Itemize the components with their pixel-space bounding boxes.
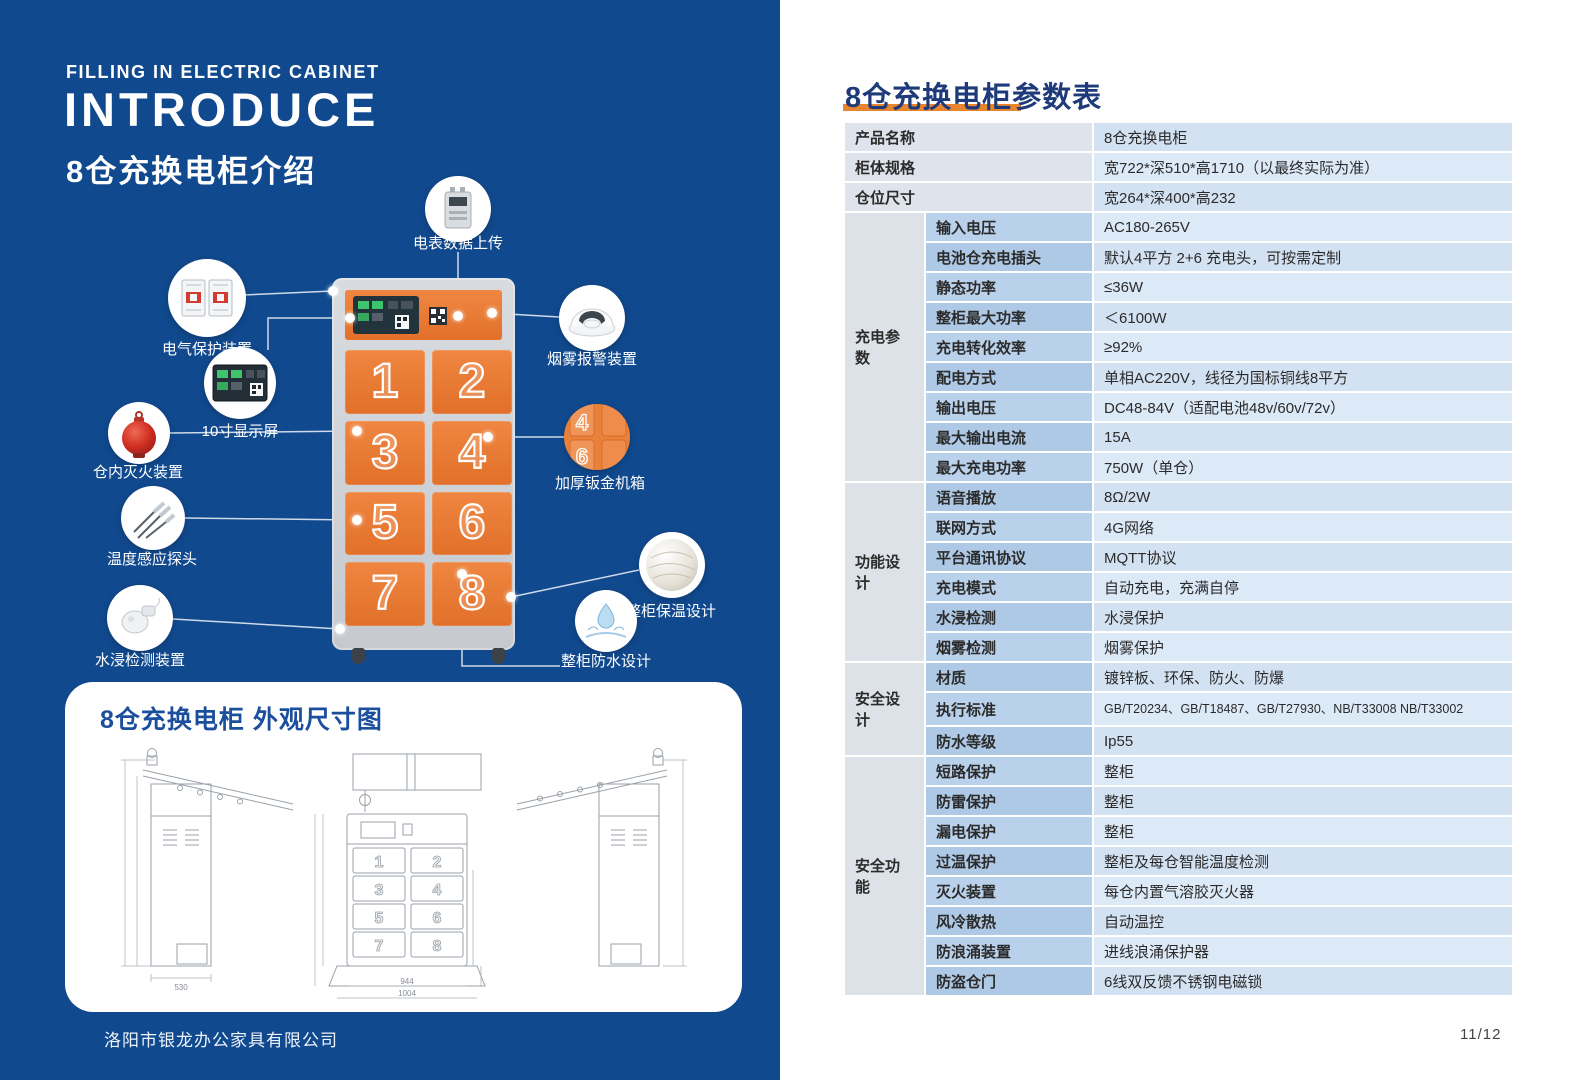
spec-param-value: 15A [1093, 422, 1513, 452]
door-number: 1 [372, 358, 399, 406]
spec-param-value: 整柜 [1093, 756, 1513, 786]
callout-anchor-dot [506, 592, 516, 602]
metal-case-icon: 4 6 [564, 404, 630, 470]
spec-group-label: 安全功能 [845, 756, 925, 996]
dimension-panel-title: 8仓充换电柜 外观尺寸图 [100, 700, 383, 736]
spec-table: 产品名称8仓充换电柜柜体规格宽722*深510*高1710（以最终实际为准）仓位… [845, 123, 1514, 997]
cabinet-caster [352, 648, 365, 664]
spec-param-value: ≥92% [1093, 332, 1513, 362]
spec-param-value: 烟雾保护 [1093, 632, 1513, 662]
spec-param-value: AC180-265V [1093, 212, 1513, 242]
insulation-callout [639, 532, 705, 598]
spec-param-name: 整柜最大功率 [925, 302, 1093, 332]
spec-param-value: 默认4平方 2+6 充电头，可按需定制 [1093, 242, 1513, 272]
cabinet-door-1: 1 [345, 350, 425, 414]
cabinet-door-8: 8 [432, 562, 512, 626]
cabinet-door-2: 2 [432, 350, 512, 414]
spec-param-value: GB/T20234、GB/T18487、GB/T27930、NB/T33008 … [1093, 692, 1513, 726]
company-name: 洛阳市银龙办公家具有限公司 [104, 1026, 338, 1051]
spec-param-name: 材质 [925, 662, 1093, 692]
mini-door-number: 5 [375, 910, 384, 927]
spec-row: 产品名称8仓充换电柜 [845, 123, 1513, 152]
spec-param-name: 水浸检测 [925, 602, 1093, 632]
door-number: 3 [372, 429, 399, 477]
spec-param-name: 电池仓充电插头 [925, 242, 1093, 272]
temperature-probe-icon [130, 496, 176, 540]
smoke-alarm-callout [559, 285, 625, 351]
fire-extinguisher-callout [108, 402, 170, 464]
spec-row: 电池仓充电插头默认4平方 2+6 充电头，可按需定制 [845, 242, 1513, 272]
intro-title: INTRODUCE [64, 82, 379, 137]
water-splash-icon [582, 600, 630, 642]
callout-anchor-dot [352, 426, 362, 436]
spec-row: 仓位尺寸宽264*深400*高232 [845, 182, 1513, 212]
spec-param-name: 灭火装置 [925, 876, 1093, 906]
dim-front-base: 1004 [398, 989, 416, 998]
display-screen-icon [212, 364, 268, 402]
spec-param-value: 整柜 [1093, 786, 1513, 816]
spec-param-name: 漏电保护 [925, 816, 1093, 846]
mini-door-number: 2 [433, 854, 442, 871]
spec-param-value: 整柜及每仓智能温度检测 [1093, 846, 1513, 876]
spec-param-name: 执行标准 [925, 692, 1093, 726]
callout-anchor-dot [457, 569, 467, 579]
spec-param-name: 防雷保护 [925, 786, 1093, 816]
spec-param-value: 自动温控 [1093, 906, 1513, 936]
callout-anchor-dot [487, 308, 497, 318]
spec-param-value: ＜6100W [1093, 302, 1513, 332]
spec-param-name: 防水等级 [925, 726, 1093, 756]
water-detect-label: 水浸检测装置 [95, 649, 185, 670]
waterproof-label: 整柜防水设计 [561, 650, 651, 671]
callout-anchor-dot [328, 286, 338, 296]
door-number: 7 [372, 570, 399, 618]
spec-row: 整柜最大功率＜6100W [845, 302, 1513, 332]
spec-row: 功能设计语音播放8Ω/2W [845, 482, 1513, 512]
door-number: 5 [372, 499, 399, 547]
spec-row: 安全功能短路保护整柜 [845, 756, 1513, 786]
mini-door-number: 4 [433, 882, 442, 899]
cabinet-caster [492, 648, 505, 664]
spec-row-label: 柜体规格 [845, 152, 1093, 182]
spec-row: 安全设计材质镀锌板、环保、防火、防爆 [845, 662, 1513, 692]
door-number: 2 [459, 358, 486, 406]
mini-door-number: 3 [375, 882, 384, 899]
spec-row: 过温保护整柜及每仓智能温度检测 [845, 846, 1513, 876]
spec-row: 执行标准GB/T20234、GB/T18487、GB/T27930、NB/T33… [845, 692, 1513, 726]
insulation-label: 整柜保温设计 [626, 600, 716, 621]
spec-row: 柜体规格宽722*深510*高1710（以最终实际为准） [845, 152, 1513, 182]
metal-case-label: 加厚钣金机箱 [555, 472, 645, 493]
door-number: 4 [459, 429, 486, 477]
metal-case-door-number: 6 [576, 444, 588, 469]
side-view-left-drawing: 530 [121, 749, 293, 993]
spec-row: 最大充电功率750W（单仓） [845, 452, 1513, 482]
meter-callout-label: 电表数据上传 [413, 232, 503, 253]
spec-row: 防水等级Ip55 [845, 726, 1513, 756]
spec-param-name: 过温保护 [925, 846, 1093, 876]
dimension-drawings: 530 1 2 3 [85, 740, 725, 1008]
intro-subtitle: 8仓充换电柜介绍 [66, 146, 316, 191]
metal-case-door-number: 4 [576, 410, 589, 435]
spec-row: 充电参数输入电压AC180-265V [845, 212, 1513, 242]
spec-param-name: 烟雾检测 [925, 632, 1093, 662]
spec-param-name: 静态功率 [925, 272, 1093, 302]
spec-row-label: 产品名称 [845, 123, 1093, 152]
spec-param-value: 水浸保护 [1093, 602, 1513, 632]
spec-row: 配电方式单相AC220V，线径为国标铜线8平方 [845, 362, 1513, 392]
spec-table-title: 8仓充换电柜参数表 [845, 74, 1102, 116]
spec-param-value: DC48-84V（适配电池48v/60v/72v） [1093, 392, 1513, 422]
spec-row: 输出电压DC48-84V（适配电池48v/60v/72v） [845, 392, 1513, 422]
spec-param-value: 进线浪涌保护器 [1093, 936, 1513, 966]
callout-anchor-dot [483, 432, 493, 442]
spec-param-name: 短路保护 [925, 756, 1093, 786]
waterproof-callout [575, 590, 637, 652]
spec-row: 充电转化效率≥92% [845, 332, 1513, 362]
spec-param-value: 每仓内置气溶胶灭火器 [1093, 876, 1513, 906]
dim-side-width: 530 [174, 983, 188, 992]
spec-row-value: 宽722*深510*高1710（以最终实际为准） [1093, 152, 1513, 182]
insulation-ball-icon [643, 536, 701, 594]
spec-param-name: 风冷散热 [925, 906, 1093, 936]
spec-row: 防浪涌装置进线浪涌保护器 [845, 936, 1513, 966]
spec-param-value: ≤36W [1093, 272, 1513, 302]
front-view-doors: 1 2 3 4 5 6 7 8 [353, 848, 463, 957]
display-callout [204, 347, 276, 419]
qr-code-icon [429, 307, 447, 325]
spec-row: 水浸检测水浸保护 [845, 602, 1513, 632]
cabinet-door-4: 4 [432, 421, 512, 485]
water-detect-callout [107, 585, 173, 651]
spec-param-name: 最大输出电流 [925, 422, 1093, 452]
front-view-drawing: 1 2 3 4 5 6 7 8 944 1004 [315, 754, 485, 998]
spec-group-label: 功能设计 [845, 482, 925, 662]
spec-row-value: 8仓充换电柜 [1093, 123, 1513, 152]
spec-param-name: 充电模式 [925, 572, 1093, 602]
spec-param-name: 充电转化效率 [925, 332, 1093, 362]
spec-row: 防雷保护整柜 [845, 786, 1513, 816]
spec-param-name: 语音播放 [925, 482, 1093, 512]
spec-param-name: 输出电压 [925, 392, 1093, 422]
spec-row: 充电模式自动充电，充满自停 [845, 572, 1513, 602]
spec-row: 最大输出电流15A [845, 422, 1513, 452]
cabinet-door-grid: 12345678 [345, 350, 512, 626]
mini-door-number: 8 [433, 938, 442, 955]
callout-anchor-dot [352, 515, 362, 525]
meter-icon [441, 187, 475, 231]
temp-probe-callout [121, 486, 185, 550]
callout-anchor-dot [345, 313, 355, 323]
spec-row: 风冷散热自动温控 [845, 906, 1513, 936]
circuit-breaker-icon [179, 276, 235, 320]
callout-anchor-dot [453, 311, 463, 321]
spec-param-value: MQTT协议 [1093, 542, 1513, 572]
spec-row: 烟雾检测烟雾保护 [845, 632, 1513, 662]
spec-row: 灭火装置每仓内置气溶胶灭火器 [845, 876, 1513, 906]
smoke-detector-icon [567, 299, 617, 337]
spec-row-value: 宽264*深400*高232 [1093, 182, 1513, 212]
temp-probe-label: 温度感应探头 [107, 548, 197, 569]
spec-param-value: 整柜 [1093, 816, 1513, 846]
brochure-page: FILLING IN ELECTRIC CABINET INTRODUCE 8仓… [0, 0, 1580, 1080]
spec-group-label: 安全设计 [845, 662, 925, 756]
spec-param-name: 平台通讯协议 [925, 542, 1093, 572]
fireball-extinguisher-icon [116, 407, 162, 459]
cabinet-door-7: 7 [345, 562, 425, 626]
spec-param-value: Ip55 [1093, 726, 1513, 756]
side-view-right-drawing [517, 749, 687, 967]
water-sensor-icon [117, 598, 163, 638]
spec-row: 平台通讯协议MQTT协议 [845, 542, 1513, 572]
spec-param-value: 8Ω/2W [1093, 482, 1513, 512]
cabinet-door-6: 6 [432, 492, 512, 556]
spec-row-label: 仓位尺寸 [845, 182, 1093, 212]
page-number: 11/12 [1460, 1026, 1501, 1043]
spec-param-name: 防浪涌装置 [925, 936, 1093, 966]
spec-param-value: 6线双反馈不锈钢电磁锁 [1093, 966, 1513, 996]
spec-row: 静态功率≤36W [845, 272, 1513, 302]
spec-row: 防盗仓门6线双反馈不锈钢电磁锁 [845, 966, 1513, 996]
metal-case-callout: 4 6 [564, 404, 630, 470]
spec-group-label: 充电参数 [845, 212, 925, 482]
cabinet-top-panel [345, 290, 502, 340]
spec-param-name: 防盗仓门 [925, 966, 1093, 996]
spec-param-name: 输入电压 [925, 212, 1093, 242]
dim-front-body: 944 [400, 977, 414, 986]
spec-param-value: 自动充电，充满自停 [1093, 572, 1513, 602]
spec-param-value: 4G网络 [1093, 512, 1513, 542]
callout-anchor-dot [335, 624, 345, 634]
spec-param-name: 最大充电功率 [925, 452, 1093, 482]
mini-door-number: 6 [433, 910, 442, 927]
fire-extinguisher-label: 仓内灭火装置 [93, 461, 183, 482]
smoke-alarm-label: 烟雾报警装置 [547, 348, 637, 369]
spec-param-value: 单相AC220V，线径为国标铜线8平方 [1093, 362, 1513, 392]
spec-param-value: 750W（单仓） [1093, 452, 1513, 482]
mini-door-number: 1 [375, 854, 384, 871]
intro-eyebrow: FILLING IN ELECTRIC CABINET [66, 62, 380, 83]
spec-table-container: 产品名称8仓充换电柜柜体规格宽722*深510*高1710（以最终实际为准）仓位… [845, 123, 1513, 997]
spec-param-value: 镀锌板、环保、防火、防爆 [1093, 662, 1513, 692]
cabinet-screen-icon [353, 296, 419, 334]
intro-panel: FILLING IN ELECTRIC CABINET INTRODUCE 8仓… [0, 0, 780, 1080]
door-number: 6 [459, 499, 486, 547]
spec-row: 联网方式4G网络 [845, 512, 1513, 542]
electric-protection-callout [168, 259, 246, 337]
mini-door-number: 7 [375, 938, 384, 955]
spec-row: 漏电保护整柜 [845, 816, 1513, 846]
spec-param-name: 联网方式 [925, 512, 1093, 542]
display-label: 10寸显示屏 [202, 420, 279, 441]
spec-param-name: 配电方式 [925, 362, 1093, 392]
